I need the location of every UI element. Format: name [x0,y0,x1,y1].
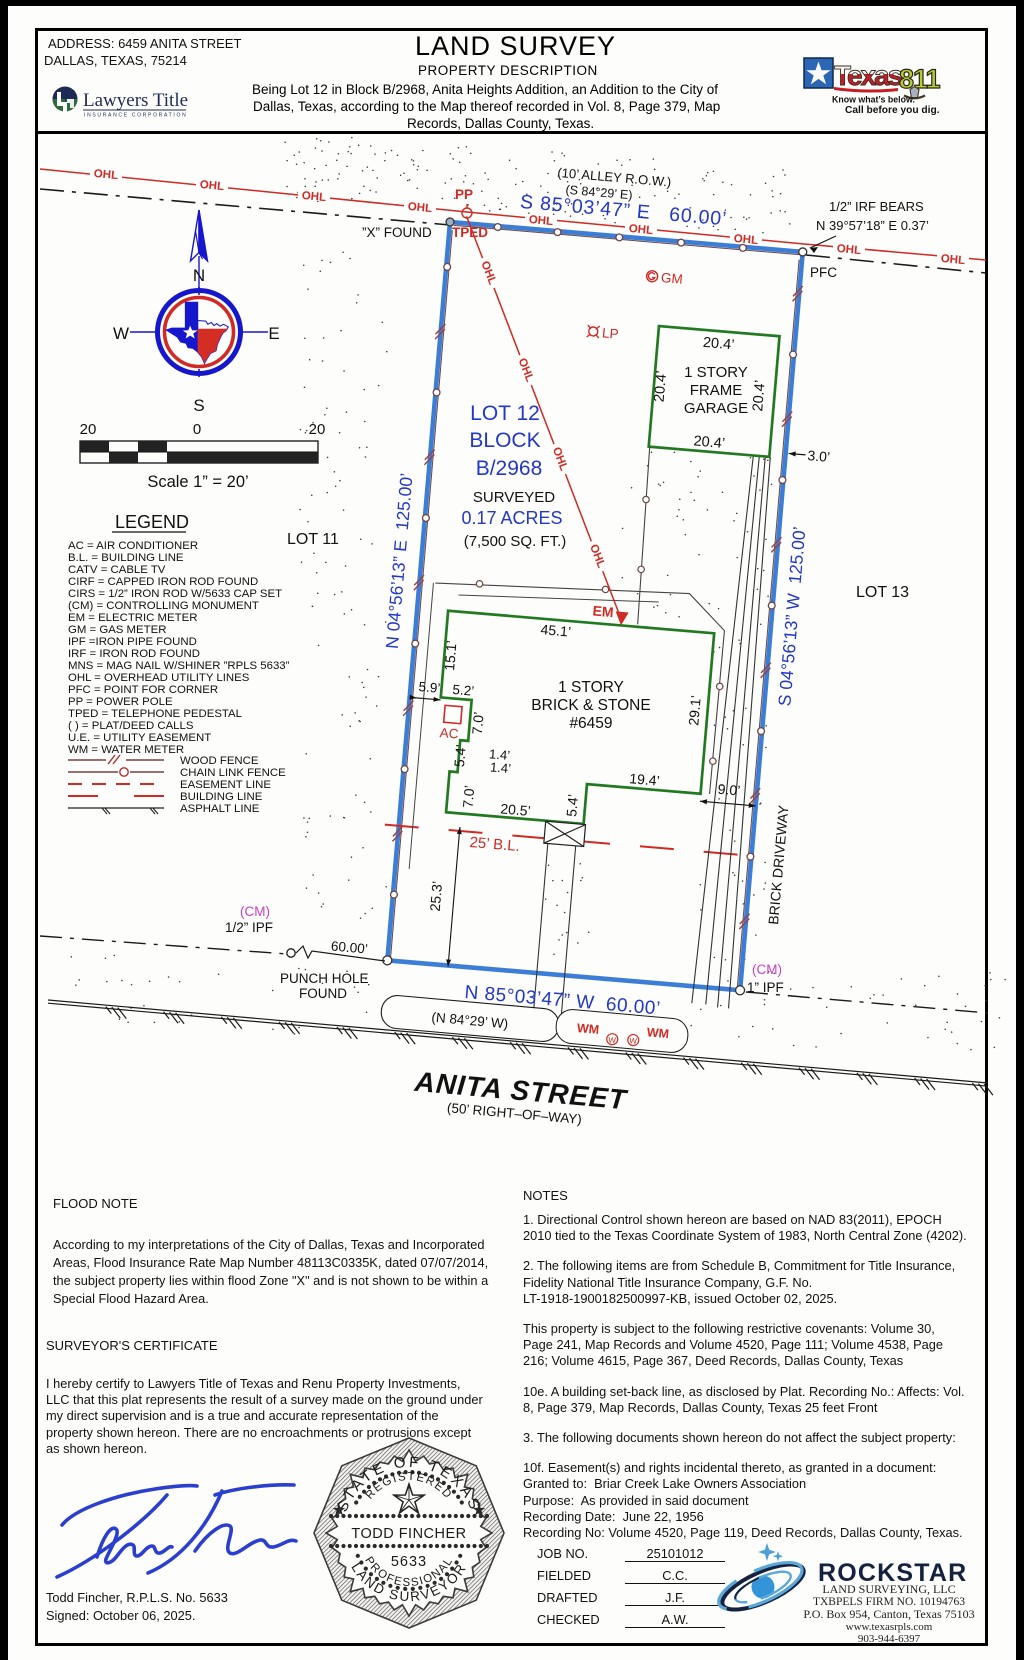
svg-text:OHL: OHL [550,446,570,473]
svg-text:OHL: OHL [628,223,653,237]
svg-text:(CM) = CONTROLLING MONUMENT: (CM) = CONTROLLING MONUMENT [68,600,259,612]
svg-text:GM = GAS METER: GM = GAS METER [68,624,166,636]
svg-text:SURVEYED: SURVEYED [473,489,555,506]
svg-text:25’ B.L.: 25’ B.L. [469,834,521,855]
svg-text:WOOD FENCE: WOOD FENCE [180,755,259,767]
svg-text:FOUND: FOUND [299,986,347,1001]
svg-text:AC = AIR CONDITIONER: AC = AIR CONDITIONER [68,540,198,552]
svg-text:25.3’: 25.3’ [427,880,446,912]
svg-text:TPED = TELEPHONE PEDESTAL: TPED = TELEPHONE PEDESTAL [68,708,242,720]
svg-text:IPF =IRON PIPE FOUND: IPF =IRON PIPE FOUND [68,636,197,648]
svg-text:1 STORY: 1 STORY [684,364,748,381]
svg-text:(7,500 SQ. FT.): (7,500 SQ. FT.) [464,533,567,550]
svg-text:LOT 13: LOT 13 [856,584,909,601]
svg-text:OHL: OHL [199,179,224,193]
svg-text:OHL: OHL [407,201,432,215]
svg-text:20.4’: 20.4’ [693,433,726,452]
svg-text:20.4’: 20.4’ [702,335,735,354]
svg-text:5.2’: 5.2’ [452,682,475,699]
svg-text:EM = ELECTRIC METER: EM = ELECTRIC METER [68,612,197,624]
svg-text:LP: LP [602,325,620,341]
svg-text:#6459: #6459 [569,715,612,732]
svg-text:BLOCK: BLOCK [469,429,540,452]
svg-text:1/2” IRF BEARS: 1/2” IRF BEARS [829,199,924,214]
svg-text:LEGEND: LEGEND [115,512,189,532]
svg-text:GM: GM [660,270,683,287]
svg-text:WM: WM [576,1021,599,1037]
svg-text:N: N [193,266,205,285]
svg-text:(CM): (CM) [752,962,782,977]
svg-text:B/2968: B/2968 [476,457,543,480]
svg-text:TPED: TPED [452,225,488,240]
svg-text:N 04°56’13” E 125.00’: N 04°56’13” E 125.00’ [382,472,417,649]
svg-text:15.1’: 15.1’ [441,640,460,672]
svg-text:1/2” IPF: 1/2” IPF [225,920,273,935]
svg-text:OHL: OHL [587,543,607,570]
svg-text:FRAME: FRAME [690,382,743,399]
svg-text:0.17 ACRES: 0.17 ACRES [461,508,562,528]
svg-text:20: 20 [80,421,97,438]
svg-text:WM: WM [646,1025,669,1041]
svg-text:CHAIN LINK FENCE: CHAIN LINK FENCE [180,767,286,779]
svg-text:PP: PP [455,187,473,202]
svg-text:MNS = MAG NAIL W/SHINER ”RPLS: MNS = MAG NAIL W/SHINER ”RPLS 5633” [68,660,290,672]
svg-text:OHL: OHL [301,190,326,204]
svg-text:OHL: OHL [478,260,498,287]
svg-text:EM: EM [592,602,614,620]
svg-text:7.0’: 7.0’ [460,785,478,809]
svg-text:LOT 12: LOT 12 [470,402,540,425]
svg-text:OHL: OHL [940,253,965,267]
svg-text:CIRF = CAPPED IRON ROD FOUND: CIRF = CAPPED IRON ROD FOUND [68,576,258,588]
svg-text:WM = WATER METER: WM = WATER METER [68,744,184,756]
svg-text:U.E. = UTILITY EASEMENT: U.E. = UTILITY EASEMENT [68,732,211,744]
svg-text:19.4’: 19.4’ [629,770,661,789]
svg-text:IRF = IRON ROD FOUND: IRF = IRON ROD FOUND [68,648,200,660]
svg-text:PFC = POINT FOR CORNER: PFC = POINT FOR CORNER [68,684,218,696]
svg-text:1.4’: 1.4’ [489,759,511,776]
svg-text:www.texasrpls.com: www.texasrpls.com [846,1621,933,1633]
svg-text:(CM): (CM) [240,904,270,919]
svg-text:PUNCH HOLE: PUNCH HOLE [280,971,369,986]
svg-text:5633: 5633 [391,1554,427,1570]
svg-text:7.0’: 7.0’ [469,711,487,735]
svg-text:5.4’: 5.4’ [563,793,581,817]
svg-text:W: W [113,324,129,343]
svg-text:20.4’: 20.4’ [750,379,769,412]
svg-text:B.L. = BUILDING LINE: B.L. = BUILDING LINE [68,552,184,564]
svg-text:W: W [629,1036,638,1046]
svg-text:( ) = PLAT/DEED CALLS: ( ) = PLAT/DEED CALLS [68,720,194,732]
svg-text:OHL: OHL [836,243,861,257]
svg-text:OHL: OHL [528,214,553,228]
svg-text:CIRS = 1/2” IRON ROD W/5633 CA: CIRS = 1/2” IRON ROD W/5633 CAP SET [68,588,282,600]
svg-text:OHL = OVERHEAD UTILITY LINES: OHL = OVERHEAD UTILITY LINES [68,672,250,684]
svg-text:P.O. Box 954, Canton, Texas 75: P.O. Box 954, Canton, Texas 75103 [803,1607,974,1621]
svg-text:20.4’: 20.4’ [652,370,671,403]
svg-text:EASEMENT LINE: EASEMENT LINE [180,779,271,791]
svg-text:OHL: OHL [93,168,118,182]
svg-text:PP = POWER POLE: PP = POWER POLE [68,696,173,708]
svg-text:Scale 1” = 20’: Scale 1” = 20’ [147,473,248,491]
svg-text:W: W [608,1035,617,1045]
svg-text:TODD FINCHER: TODD FINCHER [351,1526,466,1542]
svg-text:S: S [193,396,204,415]
svg-text:BRICK DRIVEWAY: BRICK DRIVEWAY [765,804,791,925]
svg-text:S 04°56’13” W 125.00’: S 04°56’13” W 125.00’ [774,526,809,707]
svg-text:GARAGE: GARAGE [684,400,748,417]
svg-text:CATV = CABLE TV: CATV = CABLE TV [68,564,166,576]
svg-text:PFC: PFC [810,265,837,280]
svg-text:LAND SURVEYING, LLC: LAND SURVEYING, LLC [822,1582,955,1596]
svg-text:5.9’: 5.9’ [418,679,441,696]
svg-text:1 STORY: 1 STORY [558,679,624,696]
svg-text:9.0’: 9.0’ [717,781,741,799]
svg-text:”X” FOUND: ”X” FOUND [362,225,432,240]
svg-text:5.4’: 5.4’ [451,744,469,768]
svg-text:60.00’: 60.00’ [330,938,368,956]
svg-text:20: 20 [309,421,326,438]
svg-text:45.1’: 45.1’ [540,621,572,640]
svg-text:29.1’: 29.1’ [685,695,704,727]
svg-text:E: E [268,324,279,343]
svg-text:0: 0 [193,421,201,438]
svg-text:AC: AC [439,725,459,742]
svg-text:20.5’: 20.5’ [500,800,532,819]
svg-text:N 39°57’18” E 0.37’: N 39°57’18” E 0.37’ [816,218,929,233]
svg-text:LOT 11: LOT 11 [287,531,339,548]
svg-text:903-944-6397: 903-944-6397 [858,1633,921,1645]
svg-text:BUILDING LINE: BUILDING LINE [180,791,263,803]
svg-text:3.0’: 3.0’ [807,447,831,465]
svg-text:BRICK & STONE: BRICK & STONE [531,697,650,714]
svg-text:ASPHALT LINE: ASPHALT LINE [180,803,260,815]
svg-text:OHL: OHL [516,357,536,384]
